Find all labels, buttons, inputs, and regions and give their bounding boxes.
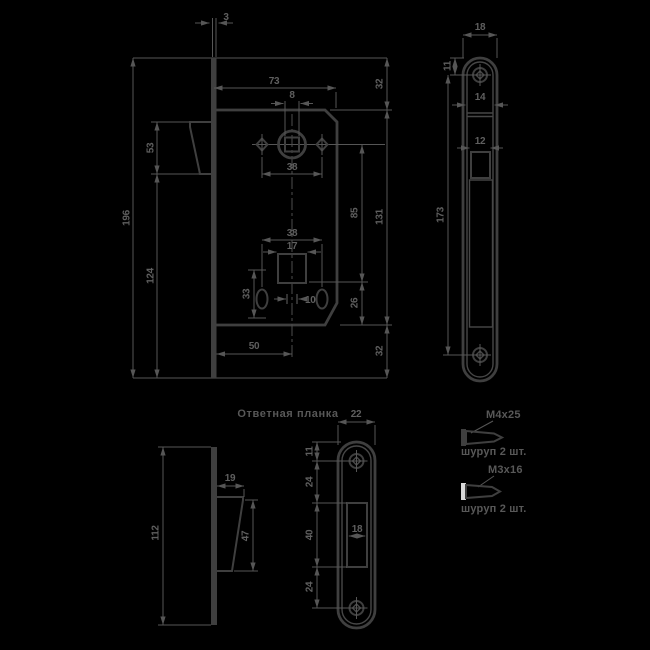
- dim-latch-face-height: 47: [241, 530, 252, 541]
- screw-2-spec: М3х16: [488, 464, 523, 476]
- screw-2-icon: [461, 483, 500, 500]
- dim-bottom-offset: 32: [375, 345, 386, 356]
- dim-backset: 50: [249, 341, 260, 352]
- dim-side-height: 112: [151, 525, 162, 541]
- hardware-screws: М4х25 шуруп 2 шт. М3х16 шуруп 2 шт.: [461, 409, 527, 515]
- dim-top-offset: 32: [375, 78, 386, 89]
- faceplate-latch-hole: [471, 152, 490, 178]
- dim-latch-hole-width: 12: [475, 136, 486, 147]
- dim-strike-screw-offset: 11: [305, 446, 316, 457]
- dim-case-height: 131: [375, 208, 386, 225]
- dim-handle-holes-span: 38: [287, 162, 298, 173]
- screw-1-qty: шуруп 2 шт.: [461, 446, 527, 458]
- lock-technical-drawing: 3 196 53 124 73 32 131 32: [0, 0, 650, 650]
- strike-plate-caption: Ответная планка: [237, 408, 338, 420]
- dim-faceplate-screw-offset: 11: [443, 60, 454, 71]
- faceplate-edge: [211, 58, 217, 378]
- side-view: 112 19 47: [151, 447, 259, 625]
- oval-hole-left: [257, 290, 268, 309]
- dim-strike-opening-height: 40: [305, 529, 316, 540]
- dim-latch-depth: 19: [225, 473, 236, 484]
- faceplate-edge-view: 18 11 173 14 12: [436, 22, 509, 381]
- dim-center-slot: 10: [305, 295, 316, 306]
- strike-plate-view: Ответная планка 22 18 11 24 40: [237, 408, 375, 628]
- dim-key-holes-span: 38: [287, 228, 298, 239]
- dim-below-latch: 124: [146, 267, 157, 284]
- strike-opening: [347, 503, 367, 567]
- main-front-view: 3 196 53 124 73 32 131 32: [122, 12, 393, 378]
- dim-keyhole-height: 33: [242, 288, 253, 299]
- dim-keyway-width: 17: [287, 241, 298, 252]
- dim-plate-thickness: 3: [223, 12, 229, 23]
- dim-faceplate-width: 18: [475, 22, 486, 33]
- dim-case-width: 73: [269, 76, 280, 87]
- oval-hole-right: [317, 290, 328, 309]
- dim-faceplate-screws-span: 173: [436, 206, 447, 223]
- dim-strike-below-opening: 24: [305, 581, 316, 592]
- dim-latch-height: 53: [146, 142, 157, 153]
- screw-1-spec: М4х25: [486, 409, 521, 421]
- faceplate-inner: [467, 62, 493, 377]
- dim-channel-width: 14: [475, 92, 486, 103]
- dim-square-hole: 8: [289, 90, 295, 101]
- dim-key-bottom-offset: 26: [350, 297, 361, 308]
- dim-strike-opening-width: 18: [352, 524, 363, 535]
- side-latch: [217, 497, 243, 571]
- side-plate: [211, 447, 217, 625]
- dim-plate-height: 196: [122, 209, 133, 226]
- screw-1-icon: [461, 429, 502, 446]
- dim-strike-above-opening: 24: [305, 476, 316, 487]
- screw-2-qty: шуруп 2 шт.: [461, 503, 527, 515]
- dim-axis-distance: 85: [350, 207, 361, 218]
- faceplate-channel: [470, 180, 493, 327]
- latch-bolt: [190, 122, 211, 174]
- dim-strike-width: 22: [351, 409, 362, 420]
